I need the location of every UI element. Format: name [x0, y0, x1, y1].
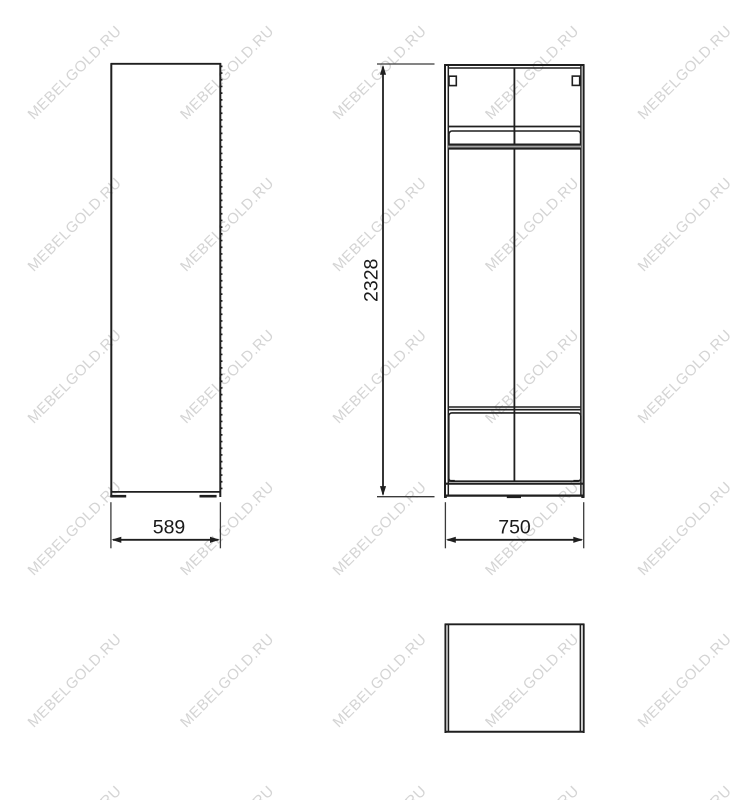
svg-text:MEBELGOLD.RU: MEBELGOLD.RU: [330, 23, 431, 124]
svg-text:MEBELGOLD.RU: MEBELGOLD.RU: [330, 783, 431, 800]
svg-text:MEBELGOLD.RU: MEBELGOLD.RU: [177, 783, 278, 800]
svg-text:MEBELGOLD.RU: MEBELGOLD.RU: [330, 631, 431, 732]
svg-text:MEBELGOLD.RU: MEBELGOLD.RU: [25, 631, 126, 732]
svg-text:MEBELGOLD.RU: MEBELGOLD.RU: [177, 175, 278, 276]
svg-text:MEBELGOLD.RU: MEBELGOLD.RU: [177, 631, 278, 732]
svg-text:750: 750: [498, 517, 531, 539]
svg-text:MEBELGOLD.RU: MEBELGOLD.RU: [635, 479, 736, 580]
svg-text:MEBELGOLD.RU: MEBELGOLD.RU: [25, 783, 126, 800]
svg-text:MEBELGOLD.RU: MEBELGOLD.RU: [482, 23, 583, 124]
svg-text:MEBELGOLD.RU: MEBELGOLD.RU: [25, 479, 126, 580]
svg-text:MEBELGOLD.RU: MEBELGOLD.RU: [177, 479, 278, 580]
svg-text:MEBELGOLD.RU: MEBELGOLD.RU: [482, 327, 583, 428]
svg-text:MEBELGOLD.RU: MEBELGOLD.RU: [482, 175, 583, 276]
svg-text:MEBELGOLD.RU: MEBELGOLD.RU: [177, 23, 278, 124]
svg-text:MEBELGOLD.RU: MEBELGOLD.RU: [635, 327, 736, 428]
svg-text:MEBELGOLD.RU: MEBELGOLD.RU: [482, 479, 583, 580]
svg-text:MEBELGOLD.RU: MEBELGOLD.RU: [482, 631, 583, 732]
svg-text:MEBELGOLD.RU: MEBELGOLD.RU: [635, 175, 736, 276]
svg-text:MEBELGOLD.RU: MEBELGOLD.RU: [482, 783, 583, 800]
svg-text:MEBELGOLD.RU: MEBELGOLD.RU: [635, 631, 736, 732]
svg-text:2328: 2328: [361, 259, 383, 302]
svg-text:MEBELGOLD.RU: MEBELGOLD.RU: [330, 327, 431, 428]
svg-text:MEBELGOLD.RU: MEBELGOLD.RU: [25, 327, 126, 428]
svg-text:MEBELGOLD.RU: MEBELGOLD.RU: [330, 479, 431, 580]
svg-text:MEBELGOLD.RU: MEBELGOLD.RU: [635, 783, 736, 800]
svg-text:589: 589: [153, 517, 186, 539]
svg-text:MEBELGOLD.RU: MEBELGOLD.RU: [635, 23, 736, 124]
svg-text:MEBELGOLD.RU: MEBELGOLD.RU: [177, 327, 278, 428]
svg-text:MEBELGOLD.RU: MEBELGOLD.RU: [25, 175, 126, 276]
svg-text:MEBELGOLD.RU: MEBELGOLD.RU: [25, 23, 126, 124]
